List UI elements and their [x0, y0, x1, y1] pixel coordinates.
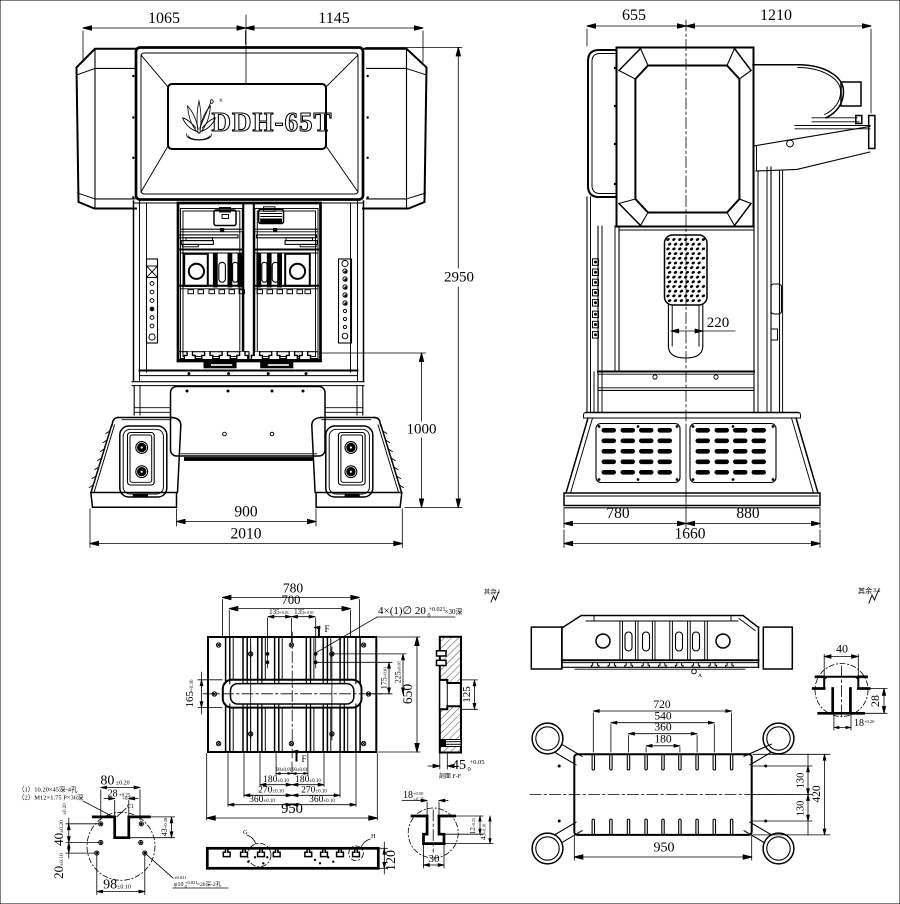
svg-text:A: A	[698, 673, 702, 679]
svg-text:1145: 1145	[318, 10, 349, 27]
svg-text:220: 220	[707, 315, 730, 331]
svg-text:180: 180	[654, 734, 672, 746]
svg-text:90±0.01: 90±0.01	[276, 768, 292, 773]
svg-text:12+0.25: 12+0.25	[469, 818, 477, 834]
svg-text:420: 420	[811, 785, 823, 803]
svg-text:其余: 其余	[858, 586, 872, 595]
svg-text:+0.05: +0.05	[122, 797, 134, 802]
svg-text:剖面 F-F: 剖面 F-F	[439, 772, 462, 780]
svg-text:90±0.01: 90±0.01	[292, 768, 308, 773]
svg-text:130: 130	[796, 801, 807, 817]
svg-text:950: 950	[281, 801, 303, 817]
svg-text:28: 28	[868, 695, 882, 707]
svg-text:C1: C1	[127, 804, 134, 810]
svg-text:H: H	[371, 833, 376, 840]
svg-text:880: 880	[736, 505, 760, 522]
svg-text:700: 700	[282, 593, 301, 607]
svg-text:3.2: 3.2	[494, 590, 501, 595]
svg-text:43+0.10: 43+0.10	[480, 824, 488, 840]
svg-text:φ10 +0.0210×26深-2孔: φ10 +0.0210×26深-2孔	[174, 880, 222, 889]
svg-text:1000: 1000	[407, 422, 437, 438]
svg-text:DDH-65T: DDH-65T	[212, 107, 333, 137]
svg-text:1065: 1065	[148, 10, 180, 27]
svg-text:±0.20: ±0.20	[63, 803, 68, 815]
svg-text:40: 40	[836, 642, 848, 656]
svg-text:780: 780	[606, 505, 630, 522]
svg-text:950: 950	[654, 841, 675, 856]
svg-text:2950: 2950	[444, 270, 474, 286]
svg-text:720: 720	[653, 699, 671, 711]
svg-text:135+0.01: 135+0.01	[294, 608, 314, 616]
svg-text:（1）10.20×45深-4孔: （1）10.20×45深-4孔	[18, 785, 78, 794]
svg-text:3.2: 3.2	[873, 588, 881, 594]
svg-text:130: 130	[796, 773, 807, 789]
svg-text:360: 360	[654, 722, 672, 734]
svg-text:650: 650	[400, 684, 415, 705]
svg-text:900: 900	[234, 504, 258, 521]
svg-text:1660: 1660	[675, 526, 706, 543]
svg-text:655: 655	[622, 7, 646, 24]
svg-text:®: ®	[219, 98, 223, 104]
svg-text:540: 540	[654, 711, 672, 723]
svg-text:F: F	[301, 754, 306, 764]
svg-text:F: F	[324, 624, 329, 634]
svg-text:135+0.01: 135+0.01	[269, 608, 289, 616]
svg-text:（2）M12×1.75 P×36深: （2）M12×1.75 P×36深	[18, 793, 84, 802]
svg-text:120: 120	[384, 850, 399, 871]
svg-text:18+0.50+0.25: 18+0.50+0.25	[403, 790, 425, 802]
svg-text:2010: 2010	[231, 526, 262, 543]
svg-text:±0.021: ±0.021	[174, 875, 187, 880]
svg-text:125: 125	[461, 686, 473, 703]
svg-text:1210: 1210	[760, 7, 792, 24]
svg-text:30: 30	[429, 853, 441, 865]
